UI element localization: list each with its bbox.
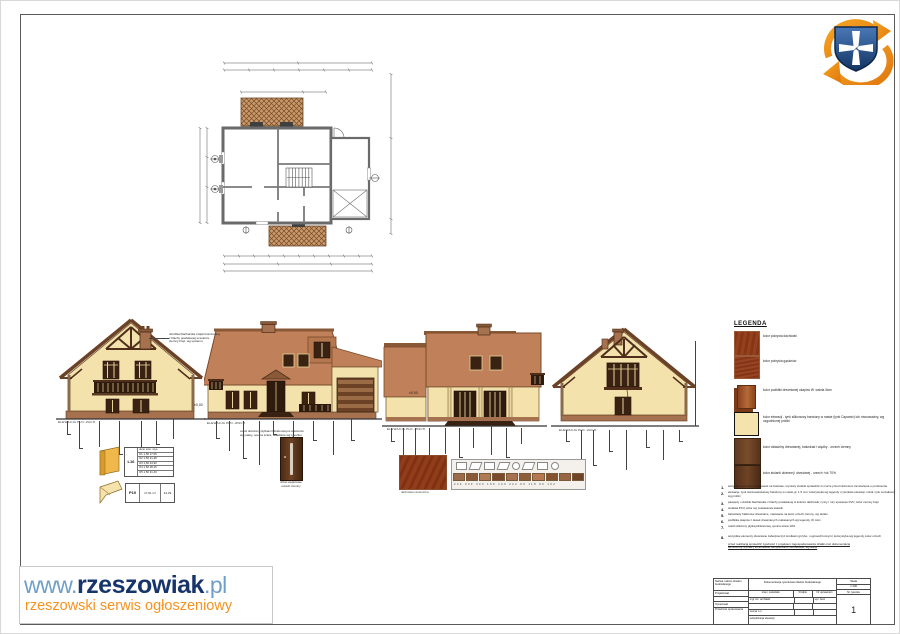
plan-dimensions-top — [223, 62, 373, 94]
legend-item: kolor pokrycia dachówki — [734, 331, 896, 356]
left-balconette — [208, 379, 224, 390]
elevation-1-label: ELEWACJA PŁN.-ZACH. — [58, 420, 96, 424]
elevation-southwest-drawing — [551, 327, 699, 431]
notes-footer: przed realizacją sprawdzić zgodność z pr… — [728, 543, 897, 550]
leader-line — [67, 421, 68, 435]
watermark-url[interactable]: www.rzeszowiak.pl — [24, 571, 272, 600]
chimney — [261, 322, 277, 333]
notes-list: 1. wszystkie wymiary weryfikować na budo… — [721, 485, 897, 550]
tile-icon — [497, 462, 511, 470]
title-block-center-column: Dokumentacja rysunkowa obiektu budowlane… — [749, 579, 837, 624]
tile-icon — [551, 462, 559, 470]
tile-icon — [456, 462, 467, 470]
tile-icon — [537, 462, 548, 470]
leader-line — [173, 419, 174, 439]
drawing-sheet: ELEWACJA PŁN.-ZACH. ELEWACJA PŁN.-WSCH. … — [0, 0, 900, 634]
leader-line — [333, 421, 334, 455]
subject-value: wizualizacja elewacji — [749, 616, 836, 628]
wood-cladding-swatch — [734, 438, 761, 465]
sheet-number: 1 — [837, 595, 870, 625]
note-item: 1. wszystkie wymiary weryfikować na budo… — [721, 485, 897, 489]
p10-value: 44,29 — [161, 484, 174, 502]
elevation-2-label: ELEWACJA PŁN.-WSCH. — [207, 421, 246, 425]
roof-tile-swatch — [399, 455, 447, 490]
wood-soffit-swatch — [737, 385, 756, 409]
note-item: 4. stolarka PCV, kolor wg zestawienia st… — [721, 507, 897, 511]
title-block: Nazwa i adres obiektu budowlanego Projek… — [713, 578, 871, 625]
owner-header: Nazwa i adres obiektu budowlanego — [714, 579, 748, 591]
plan-terrace-top — [241, 98, 303, 126]
tile-icon — [484, 462, 495, 470]
plan-door-arc — [334, 128, 344, 138]
plinth — [561, 415, 687, 421]
document-title: Dokumentacja rysunkowa obiektu budowlane… — [749, 579, 836, 591]
legend-item: kolor okładziny drewnianej, balustrad i … — [734, 438, 896, 465]
chimney — [477, 324, 492, 335]
plan-outer-walls — [223, 128, 331, 223]
door-detail-image — [280, 437, 303, 481]
floor-plan-drawing — [194, 56, 406, 278]
leader-line — [473, 428, 474, 448]
door-handle — [284, 456, 286, 458]
note-item: 8. wszystkie elementy drewniane zabezpie… — [721, 535, 897, 539]
door-glass-stripe — [290, 443, 293, 475]
elevation-southeast-drawing — [382, 323, 547, 431]
leader-line — [259, 421, 260, 465]
garage-wing — [332, 347, 382, 412]
steps — [444, 421, 516, 426]
porch-railing — [299, 404, 331, 412]
strip-caption: dachówka ceramiczna — [401, 490, 461, 494]
leader-line — [391, 428, 392, 442]
tile-icon — [512, 462, 520, 470]
leader-line — [313, 421, 314, 441]
title-block-right-column: Skala 1:100 Nr rysunku 1 — [837, 579, 870, 624]
leader-line — [679, 430, 680, 442]
annotation-leader — [149, 338, 169, 339]
watermark-banner[interactable]: www.rzeszowiak.pl rzeszowski serwis ogło… — [19, 566, 273, 624]
wall — [428, 387, 539, 421]
leader-line — [609, 430, 610, 452]
ridge-tile-swatch — [734, 356, 760, 379]
note-item: 5. balustrady balkonów drewniane, malowa… — [721, 513, 897, 517]
legend-item: kolor elewacji - tynk silikonowy barwion… — [734, 412, 896, 438]
door-caption-2: orzech ciemny — [273, 485, 309, 489]
legend-item: kolor pokrycia gąsiorów — [734, 356, 896, 381]
leader-line — [521, 428, 522, 444]
leader-line — [229, 421, 230, 451]
legend-title: LEGENDA — [734, 321, 896, 327]
tile-icon — [522, 462, 536, 470]
plan-dimensions-bottom — [223, 255, 373, 273]
elevation-northeast-drawing — [204, 315, 382, 427]
p10-area: 17,61 m² — [140, 484, 161, 502]
note-item: 3. parapety i obróbki blacharskie z blac… — [721, 501, 897, 505]
shield-icon — [835, 27, 877, 71]
roof-tile-swatch — [734, 331, 760, 356]
p10-code: P10 — [126, 484, 140, 502]
l16-code: L16 — [125, 448, 138, 476]
leader-line — [156, 421, 157, 445]
leader-line — [626, 430, 627, 470]
rzeszowiak-logo[interactable] — [815, 15, 899, 85]
legend-item: kolor podbitki drewnianej okapów W. wiśn… — [734, 385, 896, 412]
leader-line — [351, 419, 352, 441]
sill-detail-drawing — [98, 479, 124, 507]
plan-stairs — [286, 168, 312, 187]
leader-line — [491, 425, 492, 455]
p10-table: P10 17,61 m² 44,29 — [125, 483, 175, 503]
plinth — [428, 417, 539, 421]
strip-table: 240 330 333 190 103 222 90 118 96 102 — [451, 459, 586, 490]
lower-window — [615, 397, 631, 415]
level-zero-mark: ±0,00 — [409, 391, 418, 395]
main-roof — [424, 331, 541, 387]
lintel-detail-drawing — [97, 445, 123, 477]
note-item: 6. podbitka okapów z desek drewnianych m… — [721, 519, 897, 523]
plan-terrace-bottom — [269, 226, 326, 246]
balcony — [92, 380, 158, 396]
note-item: 2. elewacje: tynk cienkowarstwowy barwio… — [721, 491, 897, 498]
leader-line — [243, 421, 244, 459]
level-zero-mark: ±0,00 — [194, 403, 203, 407]
chimney-annotation: obróbka blacharska czapki kominowej, z b… — [169, 333, 229, 344]
columns-header: imię i nazwisko Podpis Nr uprawnień — [749, 591, 836, 598]
dimension-line-right — [695, 341, 696, 426]
plan-garage-walls — [331, 138, 369, 219]
right-balconette — [530, 373, 545, 385]
elevation-3-label: ELEWACJA PŁD.-WSCH. — [387, 427, 426, 431]
subject-label: Przedmiot opracowania — [714, 608, 748, 619]
tile-icon — [469, 462, 483, 470]
leader-line — [663, 430, 664, 460]
elevation-4-label: ELEWACJA PŁD.-ZACH. — [559, 428, 597, 432]
l16-table: L16 okno szer. wys. O1 1,50 17,65 O2 1,5… — [124, 447, 174, 477]
facade-plaster-swatch — [734, 412, 759, 436]
leader-line — [445, 428, 446, 454]
material-strip: dachówka ceramiczna 240 330 333 190 103 … — [399, 453, 585, 493]
title-block-left-column: Nazwa i adres obiektu budowlanego Projek… — [714, 579, 749, 624]
strip-values: 240 330 333 190 103 222 90 118 96 102 — [454, 483, 584, 486]
tile-profile-icons — [456, 462, 582, 470]
legend: LEGENDA kolor pokrycia dachówki kolor po… — [734, 321, 896, 489]
note-item: 7. cokół obłożony płytką klinkierową, sp… — [721, 525, 897, 529]
watermark-tagline: rzeszowski serwis ogłoszeniowy — [25, 598, 272, 614]
plinth — [66, 411, 194, 419]
color-chips — [452, 472, 585, 481]
leader-line — [273, 421, 274, 435]
leader-line — [79, 421, 80, 449]
leader-line — [646, 430, 647, 448]
leader-line — [216, 421, 217, 439]
leader-line — [99, 421, 100, 447]
leader-line — [593, 430, 594, 466]
leader-line — [566, 430, 567, 442]
